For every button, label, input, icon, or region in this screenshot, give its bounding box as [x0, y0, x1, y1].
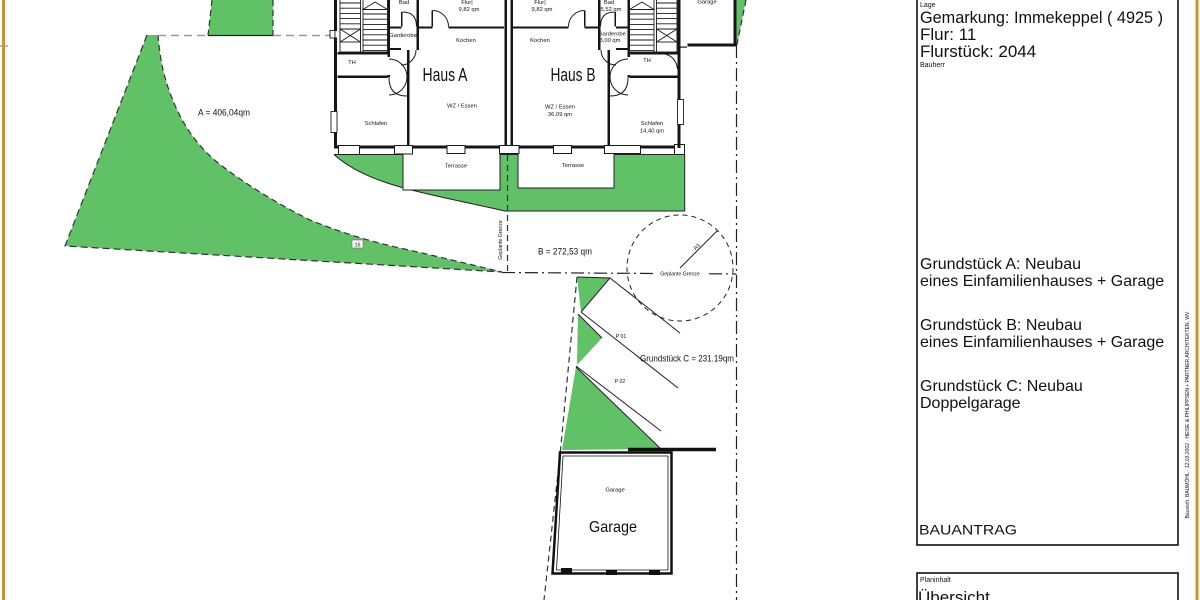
svg-text:Grundstück C: Neubau: Grundstück C: Neubau [920, 378, 1083, 395]
svg-text:Haus B: Haus B [551, 65, 596, 85]
svg-text:eines Einfamilienhauses + Ga: eines Einfamilienhauses + Garage [920, 273, 1164, 290]
svg-text:Schlafen: Schlafen [641, 121, 664, 127]
svg-text:Terrasse: Terrasse [562, 163, 584, 169]
svg-text:Grundstück B: Neubau: Grundstück B: Neubau [920, 317, 1082, 334]
svg-text:3,00 qm: 3,00 qm [600, 38, 621, 44]
svg-text:BAUANTRAG: BAUANTRAG [919, 522, 1017, 538]
svg-text:Geplante Grenze: Geplante Grenze [498, 220, 504, 260]
svg-text:Schlafen: Schlafen [365, 121, 388, 127]
svg-text:Bauherr: Bauherr [920, 62, 946, 69]
svg-text:WZ / Essen: WZ / Essen [447, 104, 477, 110]
svg-text:Geplante Grenze: Geplante Grenze [660, 272, 700, 278]
svg-text:Kochen: Kochen [456, 38, 476, 44]
svg-text:A = 406,04qm: A = 406,04qm [198, 108, 250, 119]
svg-text:Flur|: Flur| [534, 0, 546, 6]
svg-text:eines Einfamilienhauses + Ga: eines Einfamilienhauses + Garage [920, 334, 1164, 351]
svg-text:Garderobe: Garderobe [598, 32, 626, 38]
svg-text:Garage: Garage [589, 519, 637, 536]
svg-text:36,09 qm: 36,09 qm [548, 112, 572, 118]
svg-text:Flurstück: 2044: Flurstück: 2044 [920, 42, 1036, 61]
svg-text:Flur|: Flur| [461, 0, 473, 6]
svg-text:Bad: Bad [399, 0, 409, 6]
svg-text:P 01: P 01 [616, 334, 627, 340]
svg-text:WZ / Essen: WZ / Essen [545, 105, 575, 111]
svg-text:Bauvorh. BAUMÖHL · 12.03.2002: Bauvorh. BAUMÖHL · 12.03.2002 · HEISE & … [1184, 311, 1191, 518]
svg-text:9,82 qm: 9,82 qm [532, 7, 553, 13]
svg-text:5,52 qm: 5,52 qm [601, 7, 622, 13]
svg-text:Grundstück A: Neubau: Grundstück A: Neubau [920, 256, 1081, 273]
svg-text:16: 16 [354, 243, 360, 249]
svg-text:9,82 qm: 9,82 qm [459, 7, 480, 13]
svg-text:Bad: Bad [604, 0, 614, 6]
svg-text:TH: TH [643, 58, 651, 64]
svg-text:Doppelgarage: Doppelgarage [920, 395, 1021, 412]
svg-text:Garage: Garage [605, 488, 624, 494]
svg-text:Haus A: Haus A [423, 65, 468, 85]
svg-text:Kochen: Kochen [530, 38, 550, 44]
svg-text:14,40 qm: 14,40 qm [640, 129, 664, 135]
svg-text:Garage: Garage [697, 0, 716, 6]
svg-text:Übersicht: Übersicht [918, 588, 990, 600]
svg-text:Planinhalt: Planinhalt [920, 577, 951, 584]
svg-text:Garderobe: Garderobe [389, 33, 417, 39]
svg-text:Terrasse: Terrasse [445, 164, 467, 170]
svg-text:TH: TH [348, 60, 356, 66]
svg-text:Grundstück C = 231.19qm: Grundstück C = 231.19qm [640, 354, 734, 365]
svg-text:P 02: P 02 [615, 379, 626, 385]
svg-text:B = 272,53 qm: B = 272,53 qm [538, 247, 592, 258]
